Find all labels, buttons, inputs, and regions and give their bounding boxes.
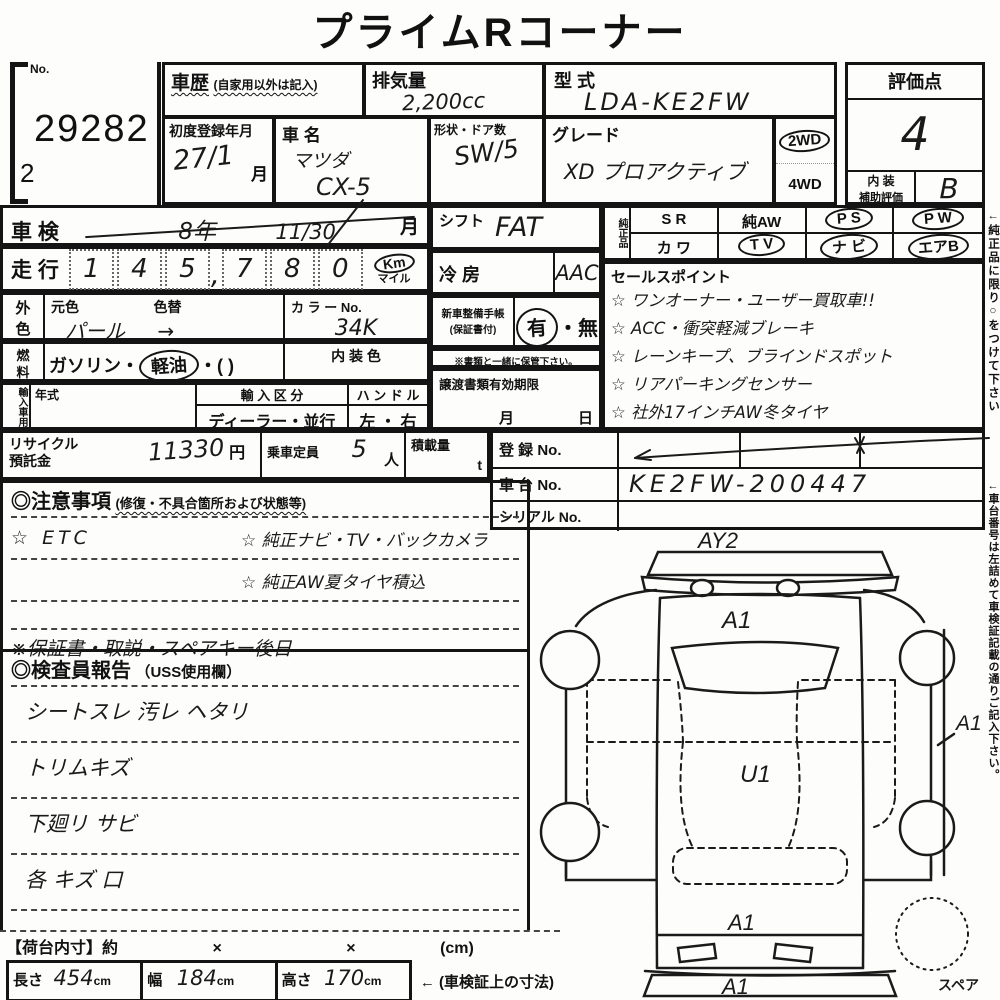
mileage-label: 走 行 [11, 254, 59, 284]
shift-cell: シフト FAT [430, 205, 602, 250]
side-note-genuine: ←純正品に限り○をつけて下さい [985, 210, 1000, 510]
sales-point: ☆ ACC・衝突軽減ブレーキ [611, 315, 976, 343]
color-no-label: カ ラ ー No. [291, 297, 421, 316]
genuine-ps: P S [825, 206, 874, 231]
sales-point: ☆ リアパーキングセンサー [611, 371, 976, 399]
year-label: 年式 [35, 388, 59, 402]
load-label: 積載量 [411, 438, 450, 453]
score-box: 評価点 4 内 装 補助評価 B [845, 62, 985, 205]
mileage-comma: , [211, 258, 220, 291]
width-unit: cm [217, 974, 234, 988]
inspector-line: 下廻リ サビ [25, 812, 137, 836]
score-value: 4 [848, 100, 982, 170]
shaken-row: 車 検 8年 11/30 月 [0, 205, 430, 246]
score-label: 評価点 [848, 65, 982, 100]
genuine-airbag: エアB [907, 232, 970, 262]
import-division-value: ディーラー・並行 [197, 406, 347, 432]
service-book-cell: 新車整備手帳 (保証書付) 有・無 [430, 295, 602, 348]
history-label: 車歴 [171, 73, 209, 94]
mileage-unit-mile: マイル [374, 274, 415, 285]
history-cell: 車歴 (自家用以外は記入) [162, 62, 365, 118]
genuine-navi: ナ ビ [819, 232, 879, 262]
car-maker: マツダ [292, 146, 421, 173]
base-color-label: 元色 [51, 299, 79, 315]
ac-value: AAC [555, 253, 599, 292]
dims-x2: × [346, 940, 355, 957]
mileage-digit: 1 [69, 249, 114, 290]
grade-label: グレード [552, 121, 766, 146]
capacity-unit: 人 [384, 449, 399, 470]
service-book-no: 無 [578, 318, 598, 340]
sales-point: ☆ レーンキープ、ブラインドスポット [611, 343, 976, 371]
shift-value: FAT [495, 212, 542, 243]
height-value: 170 [324, 966, 364, 990]
cargo-dims-header: 【荷台内寸】約 [6, 940, 118, 957]
color-change-label: 色替 [153, 299, 181, 315]
model-code-cell: 型 式 LDA-KE2FW [543, 62, 837, 118]
divider [157, 62, 161, 205]
genuine-sr: S R [661, 211, 686, 228]
handle-label: ハ ン ド ル [349, 385, 427, 406]
fuel-side-1: 燃 [3, 348, 43, 365]
drive-4wd: 4WD [788, 176, 821, 193]
transfer-month: 月 [499, 410, 514, 427]
service-book-label: 新車整備手帳 [433, 306, 513, 321]
service-book-yes: 有 [515, 307, 560, 349]
caution-item: ☆ ETC [11, 527, 241, 549]
service-book-sublabel: (保証書付) [433, 321, 513, 336]
caution-item: ☆ 純正ナビ・TV・バックカメラ [241, 526, 488, 551]
sales-points-label: セールスポイント [611, 266, 976, 287]
registration-arrow-scribble [619, 433, 996, 463]
side-note-chassis: ←車台番号は左詰めて車検証記載の通りご記入下さい。 [985, 480, 1000, 900]
sales-points-box: セールスポイント ☆ ワンオーナー・ユーザー買取車!! ☆ ACC・衝突軽減ブレ… [602, 261, 985, 430]
mileage-digit: 8 [270, 249, 315, 290]
height-unit: cm [364, 974, 381, 988]
ext-color-side-2: 色 [3, 319, 43, 340]
shift-label: シフト [439, 213, 484, 230]
color-no-value: 34K [291, 316, 421, 341]
transfer-day: 日 [578, 407, 593, 428]
width-value: 184 [177, 966, 217, 990]
registration-no-label: 登 録 No. [493, 433, 619, 467]
genuine-parts-grid: 純正品 S R 純AW P S P W カ ワ T V ナ ビ エアB [602, 205, 985, 261]
car-model: CX-5 [316, 173, 421, 201]
mileage-row: 走 行 1 4 5 , 7 8 0 Km マイル [0, 246, 430, 292]
dims-x1: × [212, 940, 221, 957]
shape-doors-cell: 形状・ドア数 SW/5 [428, 116, 545, 205]
handle-value: 左 ・ 右 [349, 406, 427, 432]
length-label: 長さ [13, 972, 43, 989]
diagram-label-tailgate: A1 [726, 910, 755, 935]
inspector-line: シートスレ 汚レ ヘタリ [25, 700, 248, 724]
capacity-label: 乗車定員 [267, 445, 319, 460]
diagram-label-spare: スペア [938, 977, 979, 993]
interior-score: B [916, 172, 982, 208]
ext-color-side-1: 外 [3, 298, 43, 319]
grade-cell: グレード XD プロアクティブ [543, 116, 775, 205]
transfer-docs-label: 譲渡書類有効期限 [439, 374, 593, 393]
capacity-value: 5 [351, 435, 366, 463]
sales-point: ☆ ワンオーナー・ユーザー買取車!! [611, 287, 976, 315]
recycle-label-2: 預託金 [9, 453, 78, 470]
recycle-unit: 円 [229, 445, 245, 462]
diagram-label-roof: U1 [740, 761, 771, 788]
recycle-label-1: リサイクル [9, 436, 78, 453]
lot-sub-number: 2 [20, 158, 34, 189]
inspector-line: トリムキズ [25, 756, 130, 780]
recycle-row: リサイクル 預託金 11330 円 乗車定員 5 人 積載量 t [0, 430, 490, 480]
displacement-value: 2,200cc [402, 87, 537, 116]
fuel-option-gasoline: ガソリン・ [49, 356, 139, 376]
import-side-label: 輸入車用 [3, 385, 31, 427]
genuine-tv: T V [737, 232, 786, 257]
interior-color-label: 内 装 色 [291, 346, 421, 366]
dims-cm: (cm) [440, 940, 474, 957]
service-book-note: ※書類と一緒に保管下さい。 [430, 348, 602, 368]
grade-value: XD プロアクティブ [564, 156, 766, 186]
sales-point: ☆ 社外17インチAW冬タイヤ [611, 399, 976, 427]
service-book-dot: ・ [558, 318, 578, 340]
mileage-digit: 0 [318, 249, 363, 290]
diagram-label-rear-bumper: A1 [720, 974, 749, 999]
ac-cell: 冷 房 AAC [430, 250, 602, 295]
genuine-leather: カ ワ [657, 240, 691, 257]
fuel-selected: 軽油 [138, 348, 200, 384]
diagram-label-front-bumper: AY2 [696, 530, 738, 553]
genuine-side-label: 純正品 [605, 208, 631, 258]
cautions-box: ◎注意事項 (修復・不具合箇所および状態等) ☆ ETC ☆ 純正ナビ・TV・バ… [0, 480, 530, 652]
drive-2wd: 2WD [779, 128, 832, 154]
width-label: 幅 [147, 972, 162, 989]
registration-block: 登 録 No. 車 台 No. KE2FW-200447 シリアル No. [490, 430, 985, 530]
lot-no-label: No. [30, 62, 49, 76]
serial-no-value [619, 502, 982, 531]
transfer-docs-cell: 譲渡書類有効期限 月 日 [430, 368, 602, 430]
base-color-value: パール [65, 319, 125, 343]
height-label: 高さ [282, 972, 312, 989]
inspector-report-box: ◎検査員報告 （USS使用欄） シートスレ 汚レ ヘタリ トリムキズ 下廻リ サ… [0, 652, 530, 930]
diagram-label-hood: A1 [720, 607, 751, 634]
color-arrow: → [157, 319, 174, 343]
import-division-label: 輸 入 区 分 [197, 385, 347, 406]
car-name-cell: 車 名 マツダ CX-5 [273, 116, 430, 205]
mileage-digit: 7 [222, 249, 267, 290]
vehicle-damage-diagram: AY2 A1 U1 A1 A1 A1 スペア [530, 530, 985, 1000]
history-note: (自家用以外は記入) [213, 78, 317, 92]
ac-label: 冷 房 [433, 253, 555, 292]
genuine-aw: 純AW [742, 214, 781, 231]
interior-label-1: 内 装 [848, 172, 914, 189]
page-title: プライムRコーナー [0, 0, 1000, 58]
fuel-row: 燃 料 ガソリン・軽油・( ) 内 装 色 [0, 341, 430, 382]
displacement-cell: 排気量 2,200cc [363, 62, 545, 118]
lot-number: 29282 [34, 108, 150, 151]
first-registration-cell: 初度登録年月 27/1 月 [162, 116, 275, 205]
mileage-digit: 5 [165, 249, 210, 290]
inspector-line: 各 キズ 口 [25, 868, 122, 892]
mileage-unit-km: Km [373, 251, 416, 275]
load-unit: t [477, 457, 482, 473]
genuine-pw: P W [911, 206, 964, 232]
caution-item: ☆ 純正AW夏タイヤ積込 [241, 568, 425, 593]
auction-sheet: プライムRコーナー No. 29282 2 車歴 (自家用以外は記入) 排気量 … [0, 0, 1000, 1000]
exterior-color-row: 外 色 元色 色替 パール → カ ラ ー No. 34K [0, 292, 430, 341]
mileage-digit: 4 [117, 249, 162, 290]
car-name-label: 車 名 [282, 121, 421, 146]
diagram-label-side: A1 [954, 712, 982, 735]
chassis-no-value: KE2FW-200447 [619, 469, 982, 500]
recycle-value: 11330 [147, 433, 225, 466]
interior-label-2: 補助評価 [848, 189, 914, 205]
cautions-label: ◎注意事項 [11, 491, 111, 513]
model-code-value: LDA-KE2FW [584, 88, 826, 116]
import-block: 輸入車用 年式 輸 入 区 分 ディーラー・並行 ハ ン ド ル 左 ・ 右 [0, 382, 430, 430]
fuel-side-2: 料 [3, 365, 43, 382]
fuel-option-rest: ・( ) [199, 356, 234, 376]
inspector-sublabel: （USS使用欄） [135, 664, 241, 681]
length-unit: cm [94, 974, 111, 988]
cargo-dims-band: 【荷台内寸】約 × × (cm) 長さ 454cm 幅 184cm 高さ 170… [0, 930, 560, 1000]
cautions-sublabel: (修復・不具合箇所および状態等) [115, 496, 306, 511]
drive-cell: 2WD 4WD [773, 116, 837, 205]
length-value: 454 [53, 966, 93, 990]
inspector-label: ◎検査員報告 [11, 660, 131, 682]
shaken-label: 車 検 [11, 221, 59, 244]
